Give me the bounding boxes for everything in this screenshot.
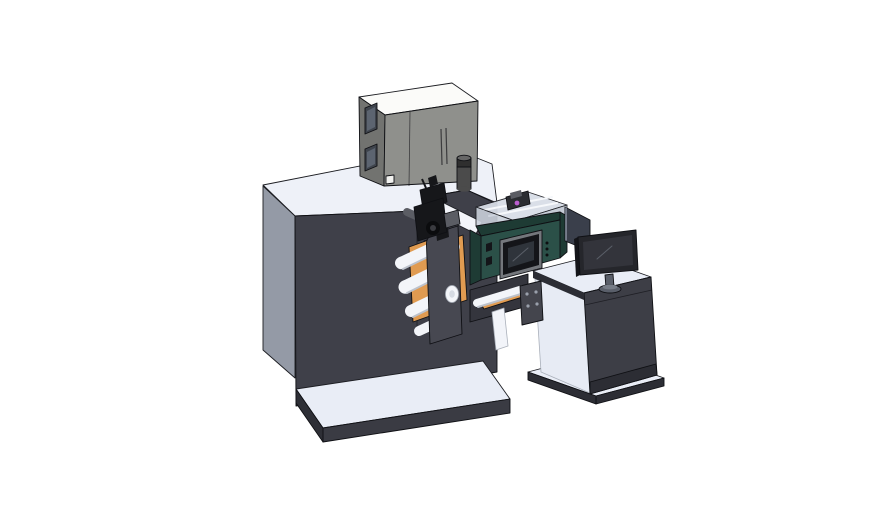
- dryer-cabinet: [359, 83, 478, 192]
- engine-button: [546, 248, 549, 251]
- engine-button: [546, 242, 549, 245]
- exhaust-muffler: [457, 155, 471, 191]
- bracket-hole: [526, 304, 529, 307]
- machine-left-face: [263, 186, 295, 378]
- muffler-bottom: [457, 186, 471, 191]
- bracket-plate: [520, 281, 543, 325]
- mounting-bracket: [520, 281, 543, 325]
- engine-button: [546, 254, 549, 257]
- cad-viewport[interactable]: [0, 0, 888, 522]
- engine-left-end: [470, 230, 481, 285]
- mechanism-knob-center: [430, 225, 436, 231]
- bracket-hole: [525, 292, 528, 295]
- cabinet-label-plate: [386, 175, 394, 184]
- muffler-top: [457, 155, 471, 161]
- control-desk: [528, 256, 664, 404]
- roller-axle: [449, 290, 455, 298]
- bracket-hole: [534, 290, 537, 293]
- render-canvas: [0, 0, 888, 522]
- cabinet-window-glass: [367, 107, 375, 131]
- bracket-hole: [535, 302, 538, 305]
- unwind-cover-plate: [426, 226, 462, 344]
- ink-indicator: [515, 201, 520, 206]
- muffler-body: [457, 167, 471, 189]
- monitor-stand-base-top: [603, 285, 618, 290]
